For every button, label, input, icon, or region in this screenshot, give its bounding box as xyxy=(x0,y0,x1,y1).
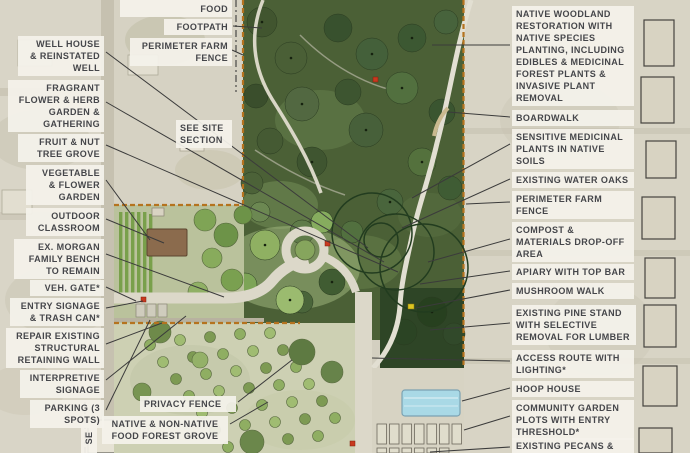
house-outline xyxy=(2,190,32,214)
house-outline xyxy=(644,305,676,347)
parking-spot xyxy=(158,304,167,317)
side-road xyxy=(0,88,115,96)
house-outline xyxy=(180,135,204,151)
driveway xyxy=(463,250,690,256)
aerial-right-strip xyxy=(463,0,690,453)
community-garden-area xyxy=(372,368,464,453)
outdoor-classroom-building xyxy=(147,229,187,256)
house-outline xyxy=(60,330,86,350)
house-outline xyxy=(643,366,677,406)
parking-spot xyxy=(136,304,145,317)
hoop-house-building xyxy=(402,390,460,416)
driveway xyxy=(463,128,690,134)
parking-spot xyxy=(147,304,156,317)
yellow-marker xyxy=(408,304,414,309)
garden-plots xyxy=(377,424,462,453)
house-outline xyxy=(18,40,52,66)
red-marker xyxy=(373,77,378,82)
site-plan-map xyxy=(0,0,690,453)
house-outline xyxy=(645,258,675,298)
house-outline xyxy=(639,428,672,453)
house-outline xyxy=(644,20,674,66)
access-road xyxy=(355,292,372,453)
house-outline xyxy=(642,197,675,239)
retaining-wall xyxy=(114,318,264,322)
loop-island xyxy=(295,240,315,260)
aerial-left-strip xyxy=(0,0,132,453)
site-plan-page: WELL HOUSE & REINSTATED WELLFRAGRANT FLO… xyxy=(0,0,690,453)
house-outline xyxy=(646,141,676,178)
house-outline xyxy=(641,77,674,123)
red-marker xyxy=(350,441,355,446)
aerial-northwest-block xyxy=(114,0,245,205)
shed xyxy=(152,208,164,216)
street-west xyxy=(101,0,115,453)
